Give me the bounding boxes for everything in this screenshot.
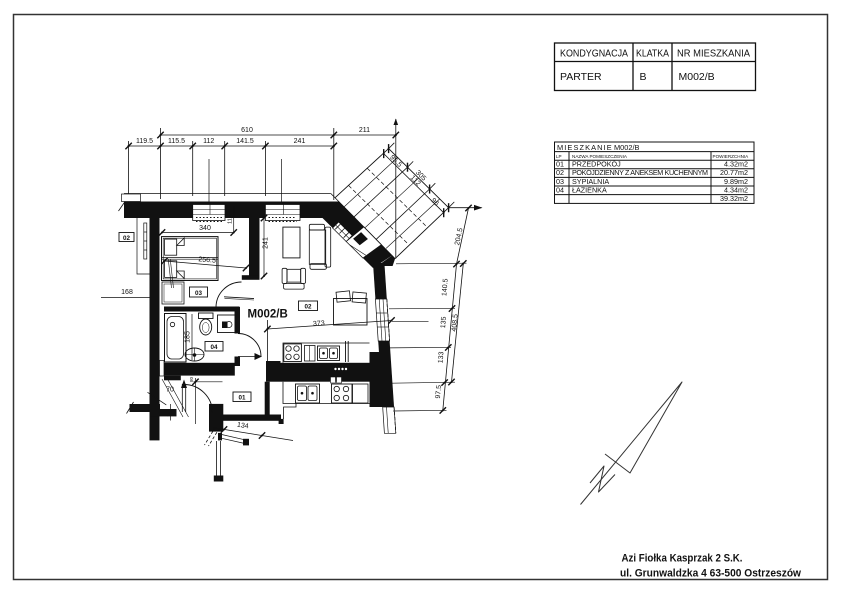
- svg-text:141.5: 141.5: [236, 138, 254, 145]
- svg-text:211: 211: [359, 127, 370, 134]
- svg-text:04: 04: [556, 185, 564, 194]
- svg-text:NR MIESZKANIA: NR MIESZKANIA: [677, 48, 750, 60]
- svg-text:168: 168: [121, 289, 133, 296]
- svg-text:M002/B: M002/B: [248, 309, 288, 321]
- svg-text:MIESZKANIE: MIESZKANIE: [557, 143, 613, 152]
- svg-text:04: 04: [210, 344, 218, 351]
- svg-text:70: 70: [166, 387, 174, 394]
- svg-text:4.34m2: 4.34m2: [724, 185, 748, 194]
- svg-text:112: 112: [203, 138, 214, 145]
- svg-text:02: 02: [123, 235, 131, 242]
- svg-text:M002/B: M002/B: [679, 71, 715, 83]
- svg-text:340: 340: [199, 225, 211, 232]
- svg-text:M002/B: M002/B: [614, 143, 640, 152]
- svg-text:KLATKA: KLATKA: [636, 48, 669, 60]
- svg-text:185: 185: [185, 331, 192, 343]
- svg-text:408.5: 408.5: [451, 314, 460, 332]
- svg-text:133: 133: [438, 351, 446, 363]
- svg-text:ŁAZIENKA: ŁAZIENKA: [572, 185, 607, 194]
- svg-text:80: 80: [189, 377, 194, 383]
- svg-text:97.5: 97.5: [435, 385, 443, 399]
- svg-text:01: 01: [238, 395, 246, 402]
- svg-text:140.5: 140.5: [441, 278, 450, 296]
- svg-text:03: 03: [195, 290, 203, 297]
- svg-text:PARTER: PARTER: [560, 71, 602, 83]
- svg-text:NAZWA POMIESZCZENIA: NAZWA POMIESZCZENIA: [572, 154, 628, 159]
- svg-text:119.5: 119.5: [136, 138, 153, 145]
- svg-text:135: 135: [440, 316, 448, 328]
- svg-text:39.32m2: 39.32m2: [720, 194, 748, 203]
- svg-text:115.5: 115.5: [168, 138, 185, 145]
- svg-text:Azi Fiołka Kasprzak 2 S.K.: Azi Fiołka Kasprzak 2 S.K.: [622, 553, 743, 565]
- svg-text:241: 241: [294, 138, 306, 145]
- svg-text:LP: LP: [556, 154, 562, 159]
- svg-text:96: 96: [429, 197, 440, 208]
- svg-text:256.5: 256.5: [198, 256, 216, 264]
- svg-text:204.5: 204.5: [454, 227, 465, 246]
- svg-text:241: 241: [263, 237, 270, 249]
- svg-text:134: 134: [236, 422, 249, 431]
- svg-text:115: 115: [227, 215, 233, 224]
- svg-text:02: 02: [304, 303, 312, 310]
- svg-text:KONDYGNACJA: KONDYGNACJA: [560, 48, 628, 60]
- svg-text:ul. Grunwaldzka 4 63-500 Ostrz: ul. Grunwaldzka 4 63-500 Ostrzeszów: [620, 568, 801, 580]
- svg-text:POWIERZCHNIA: POWIERZCHNIA: [713, 154, 750, 159]
- svg-text:373: 373: [313, 320, 325, 328]
- svg-text:610: 610: [241, 127, 253, 134]
- svg-text:B: B: [640, 71, 647, 83]
